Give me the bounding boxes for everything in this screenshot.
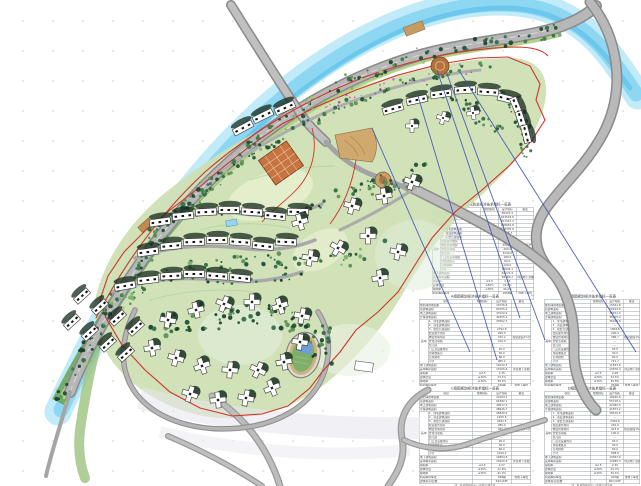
indicator-table: B组团规划经济技术指标一览表项目规划指标设计指标备注规划净用地面积15341.8… [544,294,640,392]
indicator-tables: 建设工程规划总经济技术指标一览表项目规划指标设计指标备注规划净用地面积85323… [0,0,641,486]
indicator-grid: 项目规划指标设计指标备注规划净用地面积15341.8总建筑面积50224.6地上… [544,300,640,393]
indicator-grid: 项目规划指标设计指标备注规划净用地面积19726.5总建筑面积61055.2地上… [419,300,531,393]
indicator-table: A组团规划经济技术指标一览表项目规划指标设计指标备注规划净用地面积19726.5… [419,294,531,392]
indicator-grid: 项目规划指标设计指标备注规划净用地面积85323.4总建筑面积263518.6地… [432,208,534,301]
indicator-grid: 项目规划指标设计指标备注规划净用地面积18240.6总建筑面积55718.4地上… [544,392,640,485]
master-plan-canvas: 建设工程规划总经济技术指标一览表项目规划指标设计指标备注规划净用地面积85323… [0,0,641,486]
indicator-grid: 项目规划指标设计指标备注规划净用地面积21563.2总建筑面积64382.1地上… [419,392,531,485]
indicator-table: 建设工程规划总经济技术指标一览表项目规划指标设计指标备注规划净用地面积85323… [432,202,534,302]
indicator-table: D组团规划经济技术指标一览表项目规划指标设计指标备注规划净用地面积18240.6… [544,386,640,486]
indicator-table: C组团规划经济技术指标一览表项目规划指标设计指标备注规划净用地面积21563.2… [419,386,531,486]
